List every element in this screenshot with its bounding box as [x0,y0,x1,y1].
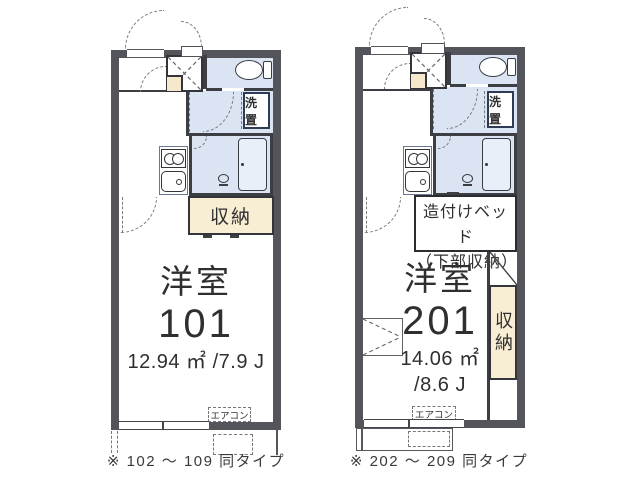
built-in-bed: 造付けベッド （下部収納） [414,195,517,252]
balcony-end-cap [361,428,363,451]
meter-box [421,43,445,54]
cabinet-door-arc [424,18,445,44]
floor-plan-201: 洗置 造付けベッド （下部収納） 収納 [0,0,640,487]
room-area-m2-label: 14.06 ㎡ [363,349,517,369]
stove-icon [405,149,430,168]
bathtub-handle [485,163,488,166]
laundry-label: 洗置 [489,93,512,127]
bed-label-line1: 造付けベッド [416,200,515,250]
toilet-tank-icon [507,58,516,76]
toilet-icon [479,57,507,77]
entry-door-arc [369,7,408,46]
wall-segment [447,52,451,85]
room-area-jo-label: /8.6 J [363,375,517,395]
hall-door-leaf [433,89,435,129]
drain-grate [463,184,472,186]
drain-icon [462,174,473,183]
room-number-label: 201 [363,301,517,341]
laundry-space: 洗置 [487,91,514,128]
sink-icon [405,171,430,192]
toilet-door-opening [466,84,488,87]
laundry-dash [484,91,486,128]
wall-segment [363,89,432,91]
room-type-label: 洋室 [363,262,517,295]
ac-outdoor-unit [408,431,450,447]
room-door-leaf [366,197,368,233]
floor-plan-sheet: 洗置 収納 洋室 101 12.94 ㎡ /7.9 J [0,0,640,487]
unit-caption: ※ 202 ～ 209 同タイプ [349,450,529,471]
room-label: 洋室 201 14.06 ㎡ /8.6 J [363,262,517,395]
entry-door-opening [371,46,408,55]
entry-step [411,72,427,88]
window [364,419,464,428]
window-mullion [408,419,410,428]
